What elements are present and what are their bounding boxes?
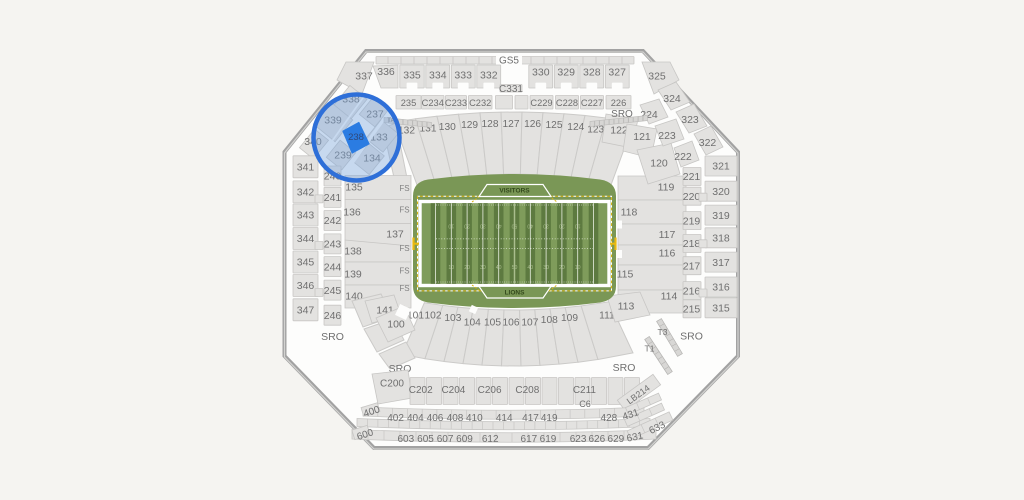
svg-text:135: 135 xyxy=(345,182,363,194)
svg-text:428: 428 xyxy=(601,413,618,424)
svg-text:C234: C234 xyxy=(422,98,444,108)
svg-text:C6: C6 xyxy=(579,399,591,409)
svg-text:C331: C331 xyxy=(499,84,523,95)
svg-text:105: 105 xyxy=(484,317,501,328)
svg-text:VISITORS: VISITORS xyxy=(499,188,530,195)
svg-text:324: 324 xyxy=(663,93,681,105)
svg-text:116: 116 xyxy=(659,248,676,260)
svg-text:117: 117 xyxy=(659,229,676,241)
svg-text:GS5: GS5 xyxy=(499,56,519,67)
svg-text:329: 329 xyxy=(557,67,575,79)
svg-text:SRO: SRO xyxy=(321,331,344,343)
svg-text:605: 605 xyxy=(417,434,434,445)
svg-text:C227: C227 xyxy=(581,98,603,108)
svg-text:336: 336 xyxy=(377,66,395,78)
svg-text:344: 344 xyxy=(297,233,315,245)
svg-text:106: 106 xyxy=(503,317,520,328)
svg-text:125: 125 xyxy=(546,120,563,131)
svg-text:20: 20 xyxy=(464,265,470,271)
svg-text:C206: C206 xyxy=(478,385,502,396)
svg-text:244: 244 xyxy=(324,261,342,273)
svg-text:40: 40 xyxy=(527,265,533,271)
svg-text:243: 243 xyxy=(324,239,342,251)
svg-text:10: 10 xyxy=(448,265,454,271)
svg-text:215: 215 xyxy=(683,304,701,316)
svg-text:321: 321 xyxy=(712,161,730,173)
svg-text:FS: FS xyxy=(399,284,409,293)
svg-text:626: 626 xyxy=(588,434,605,445)
svg-text:121: 121 xyxy=(633,131,651,143)
svg-text:FS: FS xyxy=(399,184,409,193)
svg-text:222: 222 xyxy=(674,151,692,163)
svg-text:SRO: SRO xyxy=(613,362,636,374)
svg-text:C200: C200 xyxy=(380,379,404,390)
svg-text:226: 226 xyxy=(611,98,627,108)
svg-text:417: 417 xyxy=(522,413,539,424)
svg-text:126: 126 xyxy=(524,119,541,130)
svg-text:C232: C232 xyxy=(469,98,491,108)
svg-text:246: 246 xyxy=(324,310,342,322)
svg-text:322: 322 xyxy=(699,137,717,149)
svg-text:241: 241 xyxy=(324,192,342,204)
svg-text:607: 607 xyxy=(437,434,454,445)
svg-text:10: 10 xyxy=(575,223,581,229)
svg-text:109: 109 xyxy=(561,313,578,324)
svg-text:612: 612 xyxy=(482,434,499,445)
svg-text:114: 114 xyxy=(661,291,678,303)
svg-text:343: 343 xyxy=(297,210,315,222)
svg-text:218: 218 xyxy=(683,238,701,250)
svg-text:347: 347 xyxy=(297,305,315,317)
svg-text:SRO: SRO xyxy=(680,331,703,343)
svg-text:334: 334 xyxy=(429,70,447,82)
svg-text:118: 118 xyxy=(621,207,638,219)
svg-text:FS: FS xyxy=(399,206,409,215)
svg-text:C228: C228 xyxy=(556,98,578,108)
svg-text:335: 335 xyxy=(403,70,421,82)
svg-text:40: 40 xyxy=(496,223,502,229)
svg-text:30: 30 xyxy=(480,223,486,229)
svg-text:115: 115 xyxy=(617,269,634,281)
svg-text:221: 221 xyxy=(683,171,701,183)
svg-text:410: 410 xyxy=(466,413,483,424)
svg-text:137: 137 xyxy=(386,229,404,241)
svg-text:104: 104 xyxy=(464,317,481,328)
svg-text:50: 50 xyxy=(512,223,518,229)
svg-text:328: 328 xyxy=(583,67,601,79)
svg-text:138: 138 xyxy=(344,246,362,258)
svg-text:107: 107 xyxy=(521,317,538,328)
svg-text:235: 235 xyxy=(401,98,417,108)
svg-text:10: 10 xyxy=(448,223,454,229)
svg-text:136: 136 xyxy=(343,207,361,219)
svg-text:242: 242 xyxy=(324,215,342,227)
svg-text:316: 316 xyxy=(712,282,730,294)
svg-text:327: 327 xyxy=(608,67,626,79)
svg-text:330: 330 xyxy=(532,67,550,79)
svg-text:220: 220 xyxy=(683,191,701,203)
svg-text:LIONS: LIONS xyxy=(505,290,526,297)
svg-text:T3: T3 xyxy=(658,327,668,337)
svg-text:119: 119 xyxy=(658,182,675,194)
svg-text:217: 217 xyxy=(683,260,701,272)
svg-text:30: 30 xyxy=(543,265,549,271)
svg-text:402: 402 xyxy=(387,413,404,424)
svg-text:333: 333 xyxy=(454,70,472,82)
svg-text:30: 30 xyxy=(543,223,549,229)
svg-text:128: 128 xyxy=(482,119,499,130)
svg-text:20: 20 xyxy=(559,265,565,271)
svg-text:113: 113 xyxy=(618,301,635,313)
svg-text:SRO: SRO xyxy=(611,109,633,120)
svg-text:139: 139 xyxy=(344,269,362,281)
svg-text:C208: C208 xyxy=(515,385,539,396)
svg-text:414: 414 xyxy=(496,413,513,424)
svg-text:10: 10 xyxy=(575,265,581,271)
svg-text:238: 238 xyxy=(348,132,364,143)
svg-text:50: 50 xyxy=(512,265,518,271)
svg-text:40: 40 xyxy=(496,265,502,271)
svg-text:C211: C211 xyxy=(573,385,597,396)
svg-text:332: 332 xyxy=(480,70,498,82)
svg-text:FS: FS xyxy=(399,267,409,276)
svg-text:617: 617 xyxy=(521,434,538,445)
svg-text:100: 100 xyxy=(387,319,405,331)
svg-text:C204: C204 xyxy=(441,385,465,396)
svg-text:404: 404 xyxy=(407,413,424,424)
svg-text:40: 40 xyxy=(527,223,533,229)
svg-text:C229: C229 xyxy=(530,98,552,108)
svg-text:337: 337 xyxy=(355,71,373,83)
svg-text:223: 223 xyxy=(658,130,676,142)
svg-text:219: 219 xyxy=(683,215,701,227)
svg-text:20: 20 xyxy=(559,223,565,229)
svg-text:FS: FS xyxy=(399,244,409,253)
svg-text:319: 319 xyxy=(712,210,730,222)
svg-text:345: 345 xyxy=(297,257,315,269)
svg-text:419: 419 xyxy=(541,413,558,424)
svg-text:120: 120 xyxy=(650,158,668,170)
svg-text:102: 102 xyxy=(425,311,442,322)
svg-text:609: 609 xyxy=(456,434,473,445)
svg-text:323: 323 xyxy=(681,114,699,126)
svg-text:342: 342 xyxy=(297,187,315,199)
svg-text:103: 103 xyxy=(444,313,461,324)
svg-text:216: 216 xyxy=(683,285,701,297)
svg-text:108: 108 xyxy=(541,315,558,326)
svg-text:T1: T1 xyxy=(645,344,655,354)
svg-text:315: 315 xyxy=(712,303,730,315)
svg-text:127: 127 xyxy=(503,119,520,130)
svg-text:619: 619 xyxy=(540,434,557,445)
svg-text:346: 346 xyxy=(297,280,315,292)
svg-text:317: 317 xyxy=(712,257,730,269)
svg-text:341: 341 xyxy=(297,162,315,174)
svg-text:408: 408 xyxy=(447,413,464,424)
svg-text:623: 623 xyxy=(570,434,587,445)
svg-text:629: 629 xyxy=(608,434,625,445)
svg-text:320: 320 xyxy=(712,186,730,198)
svg-text:129: 129 xyxy=(461,120,478,131)
svg-text:30: 30 xyxy=(480,265,486,271)
svg-text:325: 325 xyxy=(648,71,666,83)
svg-text:245: 245 xyxy=(324,285,342,297)
svg-text:124: 124 xyxy=(567,122,584,133)
svg-text:C233: C233 xyxy=(445,98,467,108)
svg-text:318: 318 xyxy=(712,233,730,245)
svg-text:130: 130 xyxy=(439,122,456,133)
svg-text:20: 20 xyxy=(464,223,470,229)
svg-text:406: 406 xyxy=(427,413,444,424)
svg-text:603: 603 xyxy=(397,434,414,445)
svg-text:C202: C202 xyxy=(409,385,433,396)
